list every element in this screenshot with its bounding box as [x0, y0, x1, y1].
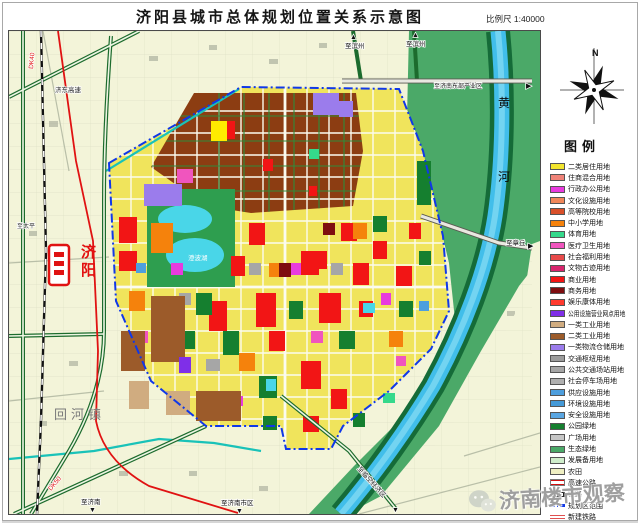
legend-swatch-fill	[550, 355, 565, 362]
map-label: 回河镇	[54, 407, 105, 422]
legend-swatch-expressway	[550, 479, 565, 486]
landuse-block-cm	[263, 159, 273, 171]
legend-swatch-fill	[550, 242, 565, 249]
landuse-block-cm	[331, 389, 347, 409]
landuse-block-i2	[196, 391, 241, 421]
legend-label: 二类工业用地	[568, 331, 610, 341]
landuse-block-cm	[227, 121, 235, 139]
legend-label: 一类工业用地	[568, 320, 610, 330]
landuse-block-cm	[309, 186, 317, 196]
legend-label: 环境设施用地	[568, 399, 610, 409]
landuse-block-md	[396, 356, 406, 366]
map-label: 至太平	[17, 222, 35, 230]
map-label: 至滨州	[406, 39, 426, 48]
landuse-block-lg	[339, 101, 353, 117]
map-label: ▼	[392, 507, 399, 514]
legend-label: 供应设施用地	[568, 388, 610, 398]
legend-item: 体育用地	[550, 229, 638, 240]
legend-item: 中小学用地	[550, 217, 638, 228]
legend-swatch-fill	[550, 231, 565, 238]
legend: 图例 二类居住用地住商混合用地行政办公用地文化设施用地高等院校用地中小学用地体育…	[550, 136, 638, 523]
legend-swatch-fill	[550, 299, 565, 306]
legend-item: 高速公路	[550, 477, 638, 488]
legend-item: 商业用地	[550, 274, 638, 285]
legend-swatch-fill	[550, 344, 565, 351]
legend-swatch-fill	[550, 254, 565, 261]
legend-item: 商务用地	[550, 285, 638, 296]
legend-swatch-fill	[550, 412, 565, 419]
legend-label: 公用设施营业网点用地	[568, 309, 625, 319]
legend-item: 交通枢纽用地	[550, 353, 638, 364]
landuse-block-cm	[353, 263, 369, 285]
legend-label: 安全设施用地	[568, 410, 610, 420]
map-label: ▼	[89, 507, 96, 514]
landuse-block-sc	[151, 223, 173, 253]
legend-rows: 二类居住用地住商混合用地行政办公用地文化设施用地高等院校用地中小学用地体育用地医…	[550, 161, 638, 523]
legend-label: 交通枢纽用地	[568, 354, 610, 364]
legend-item: 二类居住用地	[550, 161, 638, 172]
landuse-block-ad	[291, 263, 301, 275]
landuse-block-pk	[196, 293, 212, 315]
legend-item: 高等院校用地	[550, 206, 638, 217]
legend-label: 公园绿地	[568, 421, 596, 431]
legend-item: 一类物流仓储用地	[550, 342, 638, 353]
legend-swatch-fill	[550, 174, 565, 181]
map-label: ▶	[528, 243, 534, 250]
landuse-block-gy	[206, 359, 220, 371]
legend-label: 铁路	[568, 489, 582, 499]
landuse-block-pk	[373, 216, 387, 232]
landuse-block-cm	[409, 223, 421, 239]
map-label: 至济南东部产业区	[434, 82, 482, 90]
legend-label: 社会福利用地	[568, 252, 610, 262]
map-label: 至章丘	[506, 238, 526, 247]
legend-item: 社会福利用地	[550, 251, 638, 262]
legend-item: 发展备用地	[550, 455, 638, 466]
landuse-block-pk	[339, 331, 355, 349]
landuse-block-cm	[373, 241, 387, 259]
legend-label: 公共交通场站用地	[568, 365, 624, 375]
legend-swatch-fill	[550, 163, 565, 170]
legend-item: 农田	[550, 466, 638, 477]
legend-label: 医疗卫生用地	[568, 241, 610, 251]
legend-swatch-fill	[550, 423, 565, 430]
landuse-block-cm	[249, 223, 265, 245]
legend-item: 新建铁路	[550, 511, 638, 522]
landuse-block-pk	[419, 251, 431, 265]
legend-swatch-fill	[550, 400, 565, 407]
landuse-block-cm	[396, 266, 412, 286]
landuse-block-pk	[399, 301, 413, 317]
legend-swatch-boundary	[550, 504, 565, 507]
north-label: N	[592, 48, 599, 58]
legend-item: 社会停车场用地	[550, 376, 638, 387]
landuse-block-sc	[129, 291, 145, 311]
legend-swatch-fill	[550, 186, 565, 193]
landuse-block-pk	[353, 413, 365, 427]
landuse-block-lg	[144, 184, 182, 206]
legend-swatch-new-railway	[550, 515, 565, 519]
scale-label: 比例尺 1:40000	[486, 13, 545, 25]
legend-swatch-fill	[550, 220, 565, 227]
legend-label: 高等院校用地	[568, 207, 610, 217]
landuse-block-gy	[249, 263, 261, 275]
landuse-block-y2	[211, 121, 227, 141]
legend-item: 生态绿地	[550, 443, 638, 454]
legend-item: 一类工业用地	[550, 319, 638, 330]
landuse-block-cm	[269, 331, 285, 351]
legend-swatch-fill	[550, 366, 565, 373]
map-label: ▶	[526, 83, 532, 90]
legend-label: 一类物流仓储用地	[568, 342, 624, 352]
legend-label: 社会停车场用地	[568, 376, 617, 386]
landuse-block-sc	[389, 331, 403, 347]
map-label: 济东高速	[55, 85, 82, 94]
landuse-block-wa	[266, 379, 276, 391]
legend-label: 商务用地	[568, 286, 596, 296]
landuse-block-cm	[119, 251, 137, 271]
landuse-block-ut	[419, 301, 429, 311]
legend-item: 公共交通场站用地	[550, 364, 638, 375]
legend-label: 文物古迹用地	[568, 263, 610, 273]
landuse-block-cm	[231, 256, 245, 276]
legend-swatch-fill	[550, 208, 565, 215]
legend-item: 公用设施营业网点用地	[550, 308, 638, 319]
map-label: 澄波湖	[188, 253, 208, 262]
legend-label: 行政办公用地	[568, 184, 610, 194]
map-label: DK40	[28, 52, 36, 69]
landuse-block-i1	[129, 381, 149, 409]
legend-swatch-fill	[550, 389, 565, 396]
legend-item: 广场用地	[550, 432, 638, 443]
station-symbol	[49, 245, 69, 285]
legend-swatch-fill	[550, 333, 565, 340]
page-title: 济阳县城市总体规划位置关系示意图	[0, 6, 560, 27]
legend-swatch-fill	[550, 378, 565, 385]
legend-item: 铁路	[550, 489, 638, 500]
legend-item: 安全设施用地	[550, 410, 638, 421]
legend-item: 行政办公用地	[550, 184, 638, 195]
landuse-block-i2	[121, 331, 145, 371]
map-label: 至滨州	[345, 41, 365, 50]
legend-item: 公园绿地	[550, 421, 638, 432]
landuse-block-pk	[289, 301, 303, 319]
legend-label: 商业用地	[568, 275, 596, 285]
landuse-block-cm	[256, 293, 276, 327]
legend-item: 医疗卫生用地	[550, 240, 638, 251]
landuse-block-sc	[239, 353, 255, 371]
legend-item: 文化设施用地	[550, 195, 638, 206]
landuse-block-cm	[313, 251, 327, 269]
legend-label: 文化设施用地	[568, 196, 610, 206]
legend-item: 文物古迹用地	[550, 263, 638, 274]
legend-label: 二类居住用地	[568, 162, 610, 172]
map-label: ▼	[236, 508, 243, 514]
landuse-block-sc	[353, 223, 367, 239]
legend-swatch-fill	[550, 197, 565, 204]
landuse-block-cm	[319, 293, 341, 323]
legend-item: 环境设施用地	[550, 398, 638, 409]
legend-label: 生态绿地	[568, 444, 596, 454]
legend-swatch-fill	[550, 434, 565, 441]
landuse-block-pk	[263, 416, 277, 430]
legend-item: 二类工业用地	[550, 330, 638, 341]
map-label: ▲	[412, 32, 419, 39]
landuse-block-wa	[363, 303, 375, 313]
landuse-block-ad	[381, 293, 391, 305]
landuse-block-bz	[279, 263, 291, 277]
landuse-block-ad	[171, 263, 183, 275]
legend-swatch-fill	[550, 276, 565, 283]
map-label: 至济南市区	[221, 498, 254, 507]
legend-label: 发展备用地	[568, 455, 603, 465]
legend-swatch-fill	[550, 310, 565, 317]
legend-label: 广场用地	[568, 433, 596, 443]
compass: N	[556, 40, 632, 137]
legend-label: 体育用地	[568, 229, 596, 239]
legend-item: 供应设施用地	[550, 387, 638, 398]
landuse-block-i2	[151, 296, 185, 362]
screenshot-root: 济阳县城市总体规划位置关系示意图 比例尺 1:40000	[0, 0, 640, 525]
landuse-block-bz	[323, 223, 335, 235]
legend-item: 娱乐康体用地	[550, 297, 638, 308]
legend-label: 高速公路	[568, 478, 596, 488]
legend-label: 规划区范围	[568, 501, 603, 511]
planning-map: 黄河济阳回河镇澄波湖济东高速至滨州▲至滨州▲至济南东部产业区▶至章丘▶至济南▼至…	[9, 31, 540, 514]
legend-label: 娱乐康体用地	[568, 297, 610, 307]
landuse-block-md	[177, 169, 193, 183]
legend-swatch-railway	[550, 492, 565, 497]
map-canvas: 黄河济阳回河镇澄波湖济东高速至滨州▲至滨州▲至济南东部产业区▶至章丘▶至济南▼至…	[8, 30, 541, 515]
legend-label: 农田	[568, 467, 582, 477]
landuse-block-pu	[179, 357, 191, 373]
landuse-block-sp	[309, 149, 319, 159]
landuse-block-pk	[417, 161, 431, 205]
landuse-block-pk	[223, 331, 239, 355]
landuse-block-lg	[313, 93, 339, 115]
landuse-block-cm	[301, 361, 321, 389]
legend-item: 规划区范围	[550, 500, 638, 511]
legend-label: 中小学用地	[568, 218, 603, 228]
landuse-block-cm	[119, 217, 137, 243]
landuse-block-gy	[331, 263, 343, 275]
legend-swatch-fill	[550, 265, 565, 272]
map-label: 至济南	[81, 497, 101, 506]
legend-title: 图例	[564, 136, 638, 155]
legend-item: 住商混合用地	[550, 172, 638, 183]
legend-swatch-fill	[550, 446, 565, 453]
landuse-block-ut	[136, 263, 146, 273]
legend-swatch-fill	[550, 457, 565, 464]
legend-label: 新建铁路	[568, 512, 596, 522]
legend-swatch-fill	[550, 287, 565, 294]
map-label: ▲	[350, 34, 357, 41]
legend-swatch-fill	[550, 468, 565, 475]
legend-label: 住商混合用地	[568, 173, 610, 183]
landuse-block-md	[311, 331, 323, 343]
legend-swatch-fill	[550, 321, 565, 328]
